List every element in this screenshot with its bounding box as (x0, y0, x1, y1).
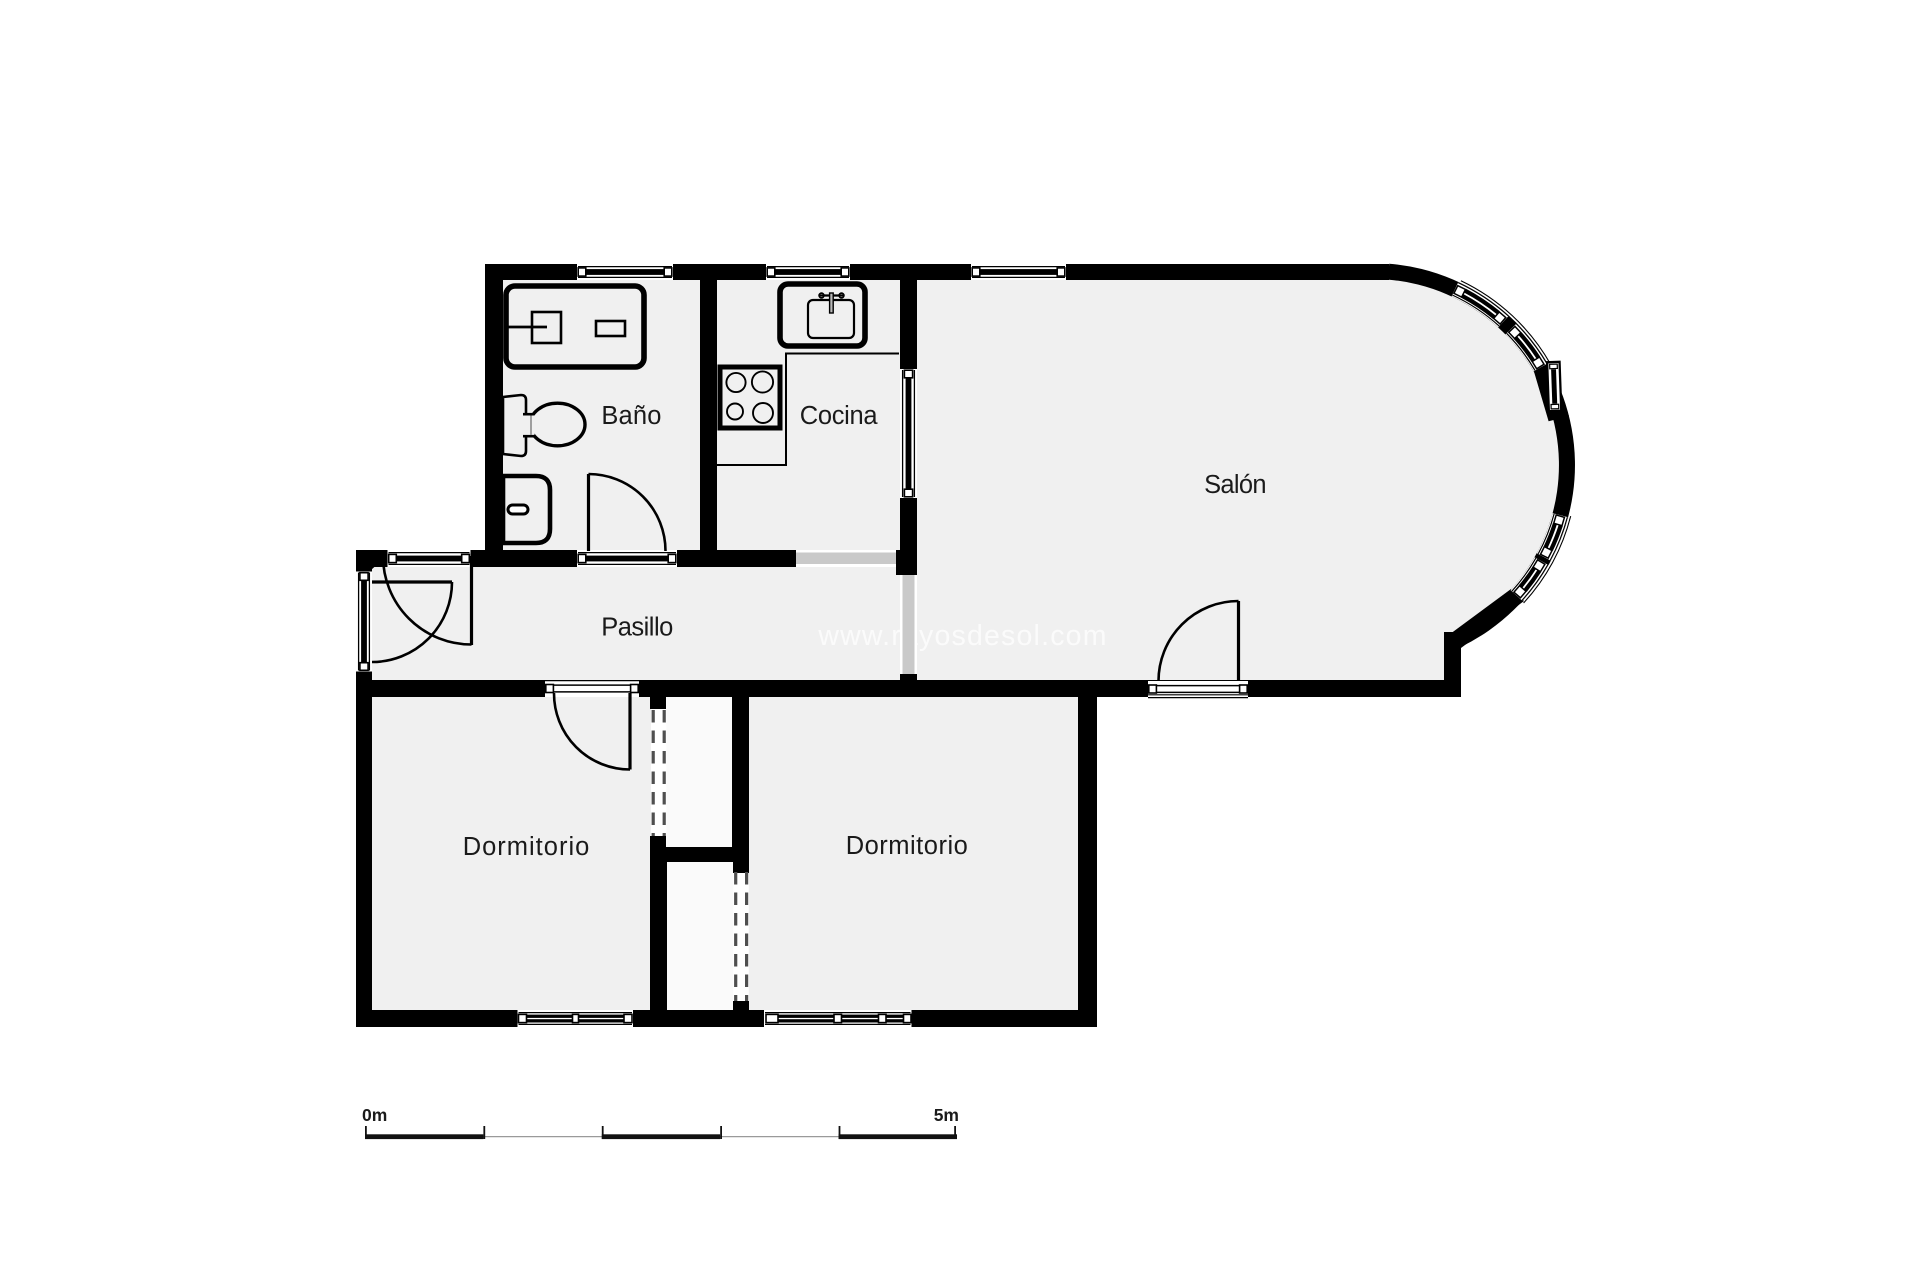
svg-text:5m: 5m (934, 1105, 959, 1125)
svg-text:Pasillo: Pasillo (601, 614, 673, 642)
svg-text:Cocina: Cocina (800, 402, 879, 430)
svg-text:www.rayosdesol.com: www.rayosdesol.com (817, 620, 1107, 652)
svg-text:0m: 0m (362, 1105, 387, 1125)
svg-text:Salón: Salón (1204, 471, 1266, 499)
svg-text:Dormitorio: Dormitorio (463, 833, 591, 861)
svg-text:Dormitorio: Dormitorio (846, 832, 969, 860)
svg-text:Baño: Baño (601, 402, 661, 430)
